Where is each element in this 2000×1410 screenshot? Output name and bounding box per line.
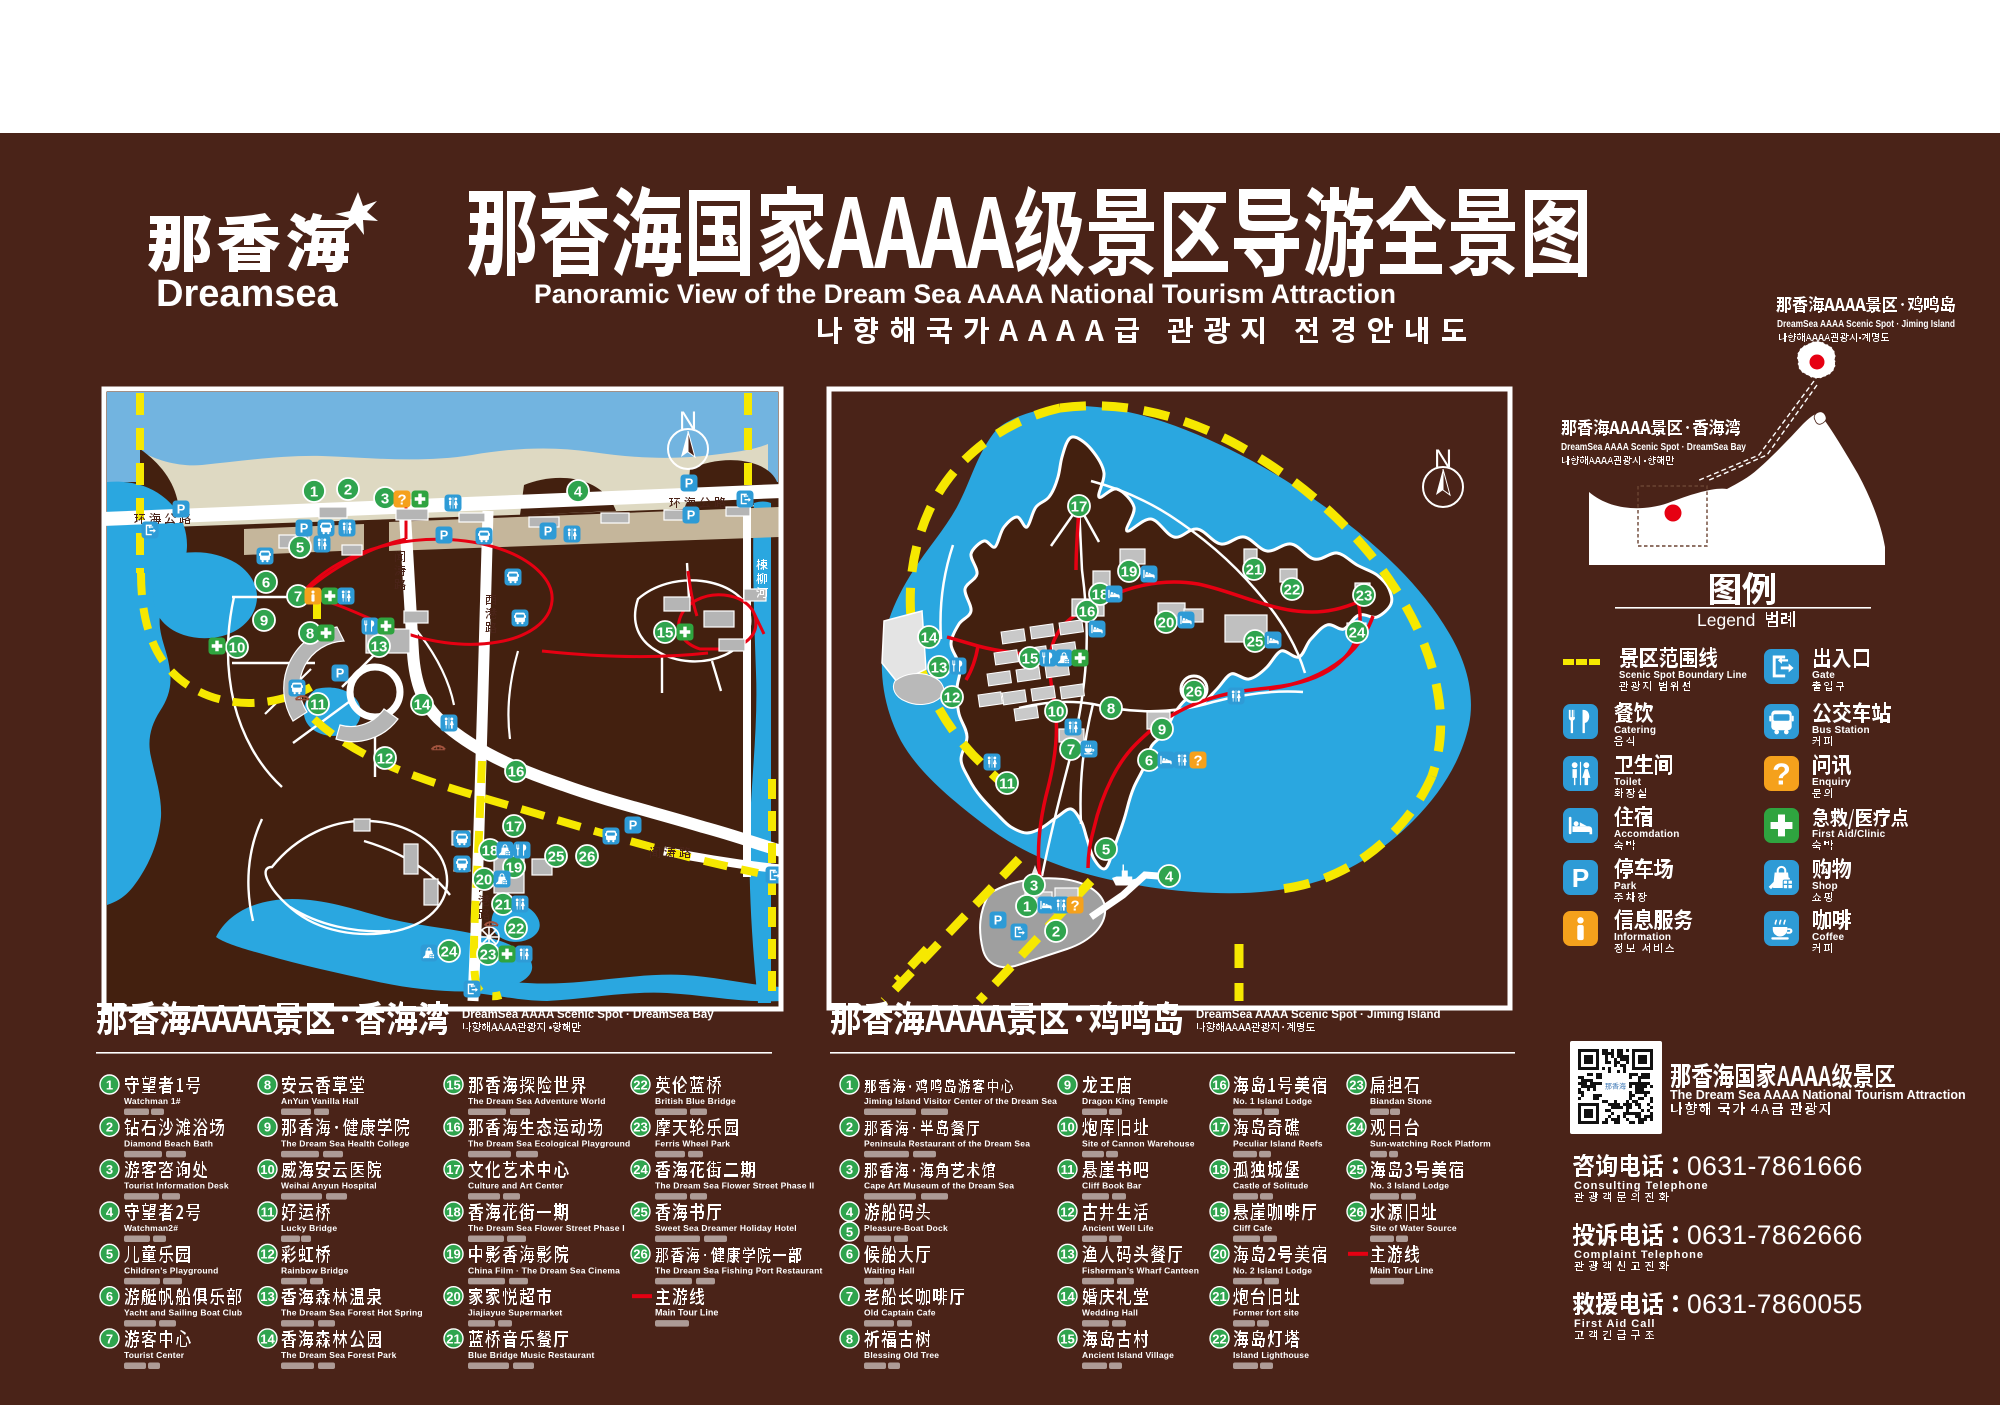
svg-text:1: 1: [1023, 899, 1031, 916]
svg-text:12: 12: [944, 690, 961, 707]
svg-text:8: 8: [264, 1077, 271, 1092]
svg-text:24: 24: [1349, 1120, 1364, 1135]
svg-text:18: 18: [446, 1204, 460, 1219]
svg-text:6: 6: [1145, 753, 1153, 770]
svg-text:2: 2: [106, 1120, 113, 1135]
svg-text:Complaint Telephone: Complaint Telephone: [1574, 1249, 1704, 1261]
svg-text:5: 5: [846, 1224, 853, 1239]
svg-text:16: 16: [1079, 604, 1096, 621]
svg-text:No. 2 Island Lodge: No. 2 Island Lodge: [1233, 1265, 1312, 1275]
svg-text:Sun-watching Rock Platform: Sun-watching Rock Platform: [1370, 1138, 1491, 1148]
svg-text:8: 8: [846, 1331, 853, 1346]
svg-text:5: 5: [1102, 842, 1110, 859]
svg-text:12: 12: [377, 751, 394, 768]
svg-text:5: 5: [296, 540, 304, 557]
svg-text:AnYun Vanilla Hall: AnYun Vanilla Hall: [281, 1096, 359, 1106]
svg-text:DreamSea AAAA Scenic Spot · Ji: DreamSea AAAA Scenic Spot · Jiming Islan…: [1777, 319, 1955, 330]
svg-text:17: 17: [506, 819, 523, 836]
svg-text:Waiting Hall: Waiting Hall: [864, 1265, 915, 1275]
svg-text:26: 26: [1186, 684, 1203, 701]
svg-text:Blue Bridge Music Restaurant: Blue Bridge Music Restaurant: [468, 1350, 595, 1360]
svg-text:The Dream Sea Health College: The Dream Sea Health College: [281, 1138, 409, 1148]
svg-text:Lucky Bridge: Lucky Bridge: [281, 1223, 337, 1233]
svg-text:Main Tour Line: Main Tour Line: [655, 1308, 718, 1318]
svg-text:17: 17: [1071, 499, 1088, 516]
svg-text:Pleasure-Boat Dock: Pleasure-Boat Dock: [864, 1223, 948, 1233]
svg-text:22: 22: [1212, 1331, 1226, 1346]
svg-text:22: 22: [1284, 582, 1301, 599]
svg-text:19: 19: [1121, 564, 1138, 581]
svg-text:Children’s Playground: Children’s Playground: [124, 1265, 219, 1275]
svg-text:Site of Cannon Warehouse: Site of Cannon Warehouse: [1082, 1138, 1195, 1148]
svg-text:9: 9: [1064, 1077, 1071, 1092]
svg-text:The Dream Sea Forest Park: The Dream Sea Forest Park: [281, 1350, 397, 1360]
svg-text:11: 11: [261, 1204, 275, 1219]
svg-text:20: 20: [1158, 615, 1175, 632]
svg-text:7: 7: [294, 589, 302, 606]
svg-text:3: 3: [106, 1162, 113, 1177]
svg-text:1: 1: [310, 484, 318, 501]
svg-text:First Aid/Clinic: First Aid/Clinic: [1812, 829, 1886, 840]
svg-text:Yacht and Sailing Boat Club: Yacht and Sailing Boat Club: [124, 1308, 242, 1318]
svg-text:24: 24: [441, 944, 458, 961]
svg-text:15: 15: [446, 1077, 460, 1092]
svg-text:DreamSea AAAA Scenic Spot · Dr: DreamSea AAAA Scenic Spot · DreamSea Bay: [1561, 442, 1746, 453]
svg-text:Jiajiayue Supermarket: Jiajiayue Supermarket: [468, 1308, 562, 1318]
svg-text:10: 10: [1048, 704, 1065, 721]
svg-text:British Blue Bridge: British Blue Bridge: [655, 1096, 736, 1106]
svg-text:2: 2: [344, 482, 352, 499]
svg-text:0631-7861666: 0631-7861666: [1687, 1151, 1863, 1181]
svg-text:Tourist Information Desk: Tourist Information Desk: [124, 1181, 229, 1191]
svg-text:The Dream Sea Flower Street Ph: The Dream Sea Flower Street Phase II: [655, 1181, 814, 1191]
svg-text:3: 3: [381, 491, 389, 508]
svg-text:16: 16: [446, 1120, 460, 1135]
svg-text:China Film · The Dream Sea Cin: China Film · The Dream Sea Cinema: [468, 1265, 620, 1275]
svg-text:25: 25: [1247, 634, 1264, 651]
svg-text:25: 25: [548, 849, 565, 866]
svg-text:Blessing Old Tree: Blessing Old Tree: [864, 1350, 939, 1360]
svg-text:23: 23: [1356, 588, 1373, 605]
svg-text:3: 3: [1030, 878, 1038, 895]
svg-text:6: 6: [846, 1247, 853, 1262]
svg-text:20: 20: [446, 1289, 460, 1304]
svg-text:3: 3: [846, 1162, 853, 1177]
svg-text:21: 21: [1246, 562, 1263, 579]
svg-text:The Dream Sea Fishing Port Res: The Dream Sea Fishing Port Restaurant: [655, 1265, 823, 1275]
svg-text:Weihai Anyun Hospital: Weihai Anyun Hospital: [281, 1181, 377, 1191]
svg-text:Fisherman’s Wharf Canteen: Fisherman’s Wharf Canteen: [1082, 1265, 1199, 1275]
svg-text:6: 6: [262, 575, 270, 592]
svg-text:Peninsula Restaurant of the Dr: Peninsula Restaurant of the Dream Sea: [864, 1138, 1030, 1148]
svg-text:2: 2: [1052, 924, 1060, 941]
svg-text:Watchman2#: Watchman2#: [124, 1223, 178, 1233]
svg-text:Ferris Wheel Park: Ferris Wheel Park: [655, 1138, 730, 1148]
svg-text:1: 1: [846, 1077, 853, 1092]
svg-text:15: 15: [1060, 1331, 1074, 1346]
svg-text:Cliff Book Bar: Cliff Book Bar: [1082, 1181, 1142, 1191]
svg-text:7: 7: [106, 1331, 113, 1346]
svg-text:Gate: Gate: [1812, 670, 1835, 681]
svg-text:20: 20: [476, 872, 493, 889]
svg-text:23: 23: [633, 1120, 647, 1135]
svg-text:7: 7: [1067, 742, 1075, 759]
svg-text:26: 26: [579, 849, 596, 866]
svg-text:The Dream Sea Forest Hot Sprin: The Dream Sea Forest Hot Spring: [281, 1308, 423, 1318]
svg-text:8: 8: [306, 626, 314, 643]
svg-text:12: 12: [1060, 1204, 1074, 1219]
svg-text:No. 1 Island Lodge: No. 1 Island Lodge: [1233, 1096, 1312, 1106]
svg-text:9: 9: [1158, 722, 1166, 739]
svg-text:Watchman 1#: Watchman 1#: [124, 1096, 181, 1106]
svg-text:Ancient Island Village: Ancient Island Village: [1082, 1350, 1174, 1360]
svg-text:12: 12: [260, 1247, 274, 1262]
svg-text:Scenic Spot Boundary Line: Scenic Spot Boundary Line: [1619, 670, 1747, 681]
svg-text:14: 14: [1060, 1289, 1075, 1304]
svg-text:13: 13: [931, 660, 948, 677]
svg-text:23: 23: [1349, 1077, 1363, 1092]
svg-text:11: 11: [1061, 1162, 1075, 1177]
svg-text:17: 17: [1212, 1120, 1226, 1135]
svg-text:Consulting Telephone: Consulting Telephone: [1574, 1180, 1709, 1192]
svg-text:11: 11: [310, 697, 326, 714]
svg-text:19: 19: [446, 1247, 460, 1262]
svg-text:4: 4: [846, 1204, 854, 1219]
svg-text:21: 21: [446, 1331, 460, 1346]
svg-text:7: 7: [846, 1289, 853, 1304]
svg-text:Shop: Shop: [1812, 881, 1838, 892]
svg-text:DreamSea AAAA Scenic Spot · Dr: DreamSea AAAA Scenic Spot · DreamSea Bay: [462, 1009, 714, 1021]
svg-text:Old Captain Cafe: Old Captain Cafe: [864, 1308, 936, 1318]
svg-text:Catering: Catering: [1614, 725, 1656, 736]
svg-text:18: 18: [482, 843, 499, 860]
svg-text:17: 17: [446, 1162, 460, 1177]
svg-text:The Dream Sea AAAA National To: The Dream Sea AAAA National Tourism Attr…: [1670, 1088, 1966, 1102]
svg-text:Cape Art Museum of the Dream S: Cape Art Museum of the Dream Sea: [864, 1181, 1014, 1191]
svg-text:Legend: Legend: [1697, 610, 1755, 630]
svg-text:The Dream Sea Flower Street Ph: The Dream Sea Flower Street Phase I: [468, 1223, 625, 1233]
svg-text:15: 15: [1022, 651, 1039, 668]
svg-text:13: 13: [260, 1289, 274, 1304]
svg-text:Enquiry: Enquiry: [1812, 777, 1851, 788]
svg-text:4: 4: [574, 484, 583, 501]
svg-text:5: 5: [106, 1247, 113, 1262]
svg-text:Castle of Solitude: Castle of Solitude: [1233, 1181, 1308, 1191]
svg-text:Bus Station: Bus Station: [1812, 725, 1870, 736]
svg-text:14: 14: [921, 630, 938, 647]
svg-text:0631-7860055: 0631-7860055: [1687, 1289, 1863, 1319]
svg-text:16: 16: [508, 764, 525, 781]
svg-text:14: 14: [414, 697, 431, 714]
svg-text:13: 13: [371, 639, 388, 656]
svg-text:Island Lighthouse: Island Lighthouse: [1233, 1350, 1309, 1360]
svg-text:Panoramic View of the Dream Se: Panoramic View of the Dream Sea AAAA Nat…: [534, 279, 1396, 309]
svg-text:The Dream Sea Ecological Playg: The Dream Sea Ecological Playground: [468, 1138, 630, 1148]
svg-text:Jiming Island Visitor Center o: Jiming Island Visitor Center of the Drea…: [864, 1096, 1057, 1106]
svg-text:24: 24: [633, 1162, 648, 1177]
svg-text:10: 10: [229, 640, 246, 657]
svg-text:The Dream Sea Adventure World: The Dream Sea Adventure World: [468, 1096, 606, 1106]
svg-text:4: 4: [1165, 869, 1174, 886]
svg-text:Site of Water Source: Site of Water Source: [1370, 1223, 1457, 1233]
svg-text:Diamond Beach Bath: Diamond Beach Bath: [124, 1138, 213, 1148]
svg-text:Ancient Well Life: Ancient Well Life: [1082, 1223, 1154, 1233]
svg-text:DreamSea AAAA Scenic Spot · Ji: DreamSea AAAA Scenic Spot · Jiming Islan…: [1196, 1009, 1441, 1021]
svg-text:14: 14: [260, 1331, 275, 1346]
svg-text:Former fort site: Former fort site: [1233, 1308, 1299, 1318]
svg-text:Information: Information: [1614, 932, 1671, 943]
svg-text:25: 25: [633, 1204, 647, 1219]
svg-text:11: 11: [999, 776, 1015, 793]
svg-text:21: 21: [495, 897, 512, 914]
svg-text:Tourist Center: Tourist Center: [124, 1350, 185, 1360]
svg-text:Peculiar Island Reefs: Peculiar Island Reefs: [1233, 1138, 1323, 1148]
svg-text:13: 13: [1060, 1247, 1074, 1262]
svg-text:9: 9: [264, 1120, 271, 1135]
svg-text:20: 20: [1212, 1247, 1226, 1262]
svg-text:22: 22: [633, 1077, 647, 1092]
svg-text:8: 8: [1107, 701, 1115, 718]
svg-text:Accomdation: Accomdation: [1614, 829, 1680, 840]
svg-text:Coffee: Coffee: [1812, 932, 1845, 943]
svg-text:No. 3 Island Lodge: No. 3 Island Lodge: [1370, 1181, 1449, 1191]
svg-text:21: 21: [1212, 1289, 1226, 1304]
svg-text:Cliff Cafe: Cliff Cafe: [1233, 1223, 1272, 1233]
svg-text:Dragon King Temple: Dragon King Temple: [1082, 1096, 1168, 1106]
svg-text:Park: Park: [1614, 881, 1637, 892]
svg-text:26: 26: [633, 1247, 647, 1262]
svg-text:0631-7862666: 0631-7862666: [1687, 1220, 1863, 1250]
svg-text:4: 4: [106, 1204, 114, 1219]
svg-text:Sweet Sea Dreamer Holiday Hote: Sweet Sea Dreamer Holiday Hotel: [655, 1223, 797, 1233]
svg-text:Biandan Stone: Biandan Stone: [1370, 1096, 1432, 1106]
svg-text:26: 26: [1349, 1204, 1363, 1219]
svg-text:18: 18: [1212, 1162, 1226, 1177]
svg-text:Culture and Art Center: Culture and Art Center: [468, 1181, 564, 1191]
svg-text:那香海: 那香海: [1605, 1082, 1626, 1091]
svg-text:Wedding Hall: Wedding Hall: [1082, 1308, 1138, 1318]
svg-text:Rainbow Bridge: Rainbow Bridge: [281, 1265, 349, 1275]
svg-text:19: 19: [1212, 1204, 1226, 1219]
svg-text:24: 24: [1349, 625, 1366, 642]
svg-text:2: 2: [846, 1120, 853, 1135]
svg-text:6: 6: [106, 1289, 113, 1304]
svg-text:9: 9: [260, 613, 268, 630]
svg-text:15: 15: [657, 625, 674, 642]
svg-text:Dreamsea: Dreamsea: [156, 273, 339, 315]
svg-text:Toilet: Toilet: [1614, 777, 1642, 788]
svg-text:16: 16: [1212, 1077, 1226, 1092]
svg-text:10: 10: [1060, 1120, 1074, 1135]
svg-text:10: 10: [260, 1162, 274, 1177]
svg-text:22: 22: [508, 921, 525, 938]
svg-text:Main Tour Line: Main Tour Line: [1370, 1265, 1433, 1275]
svg-text:25: 25: [1349, 1162, 1363, 1177]
svg-text:1: 1: [106, 1077, 113, 1092]
svg-text:23: 23: [480, 947, 497, 964]
svg-text:First Aid Call: First Aid Call: [1574, 1318, 1655, 1330]
